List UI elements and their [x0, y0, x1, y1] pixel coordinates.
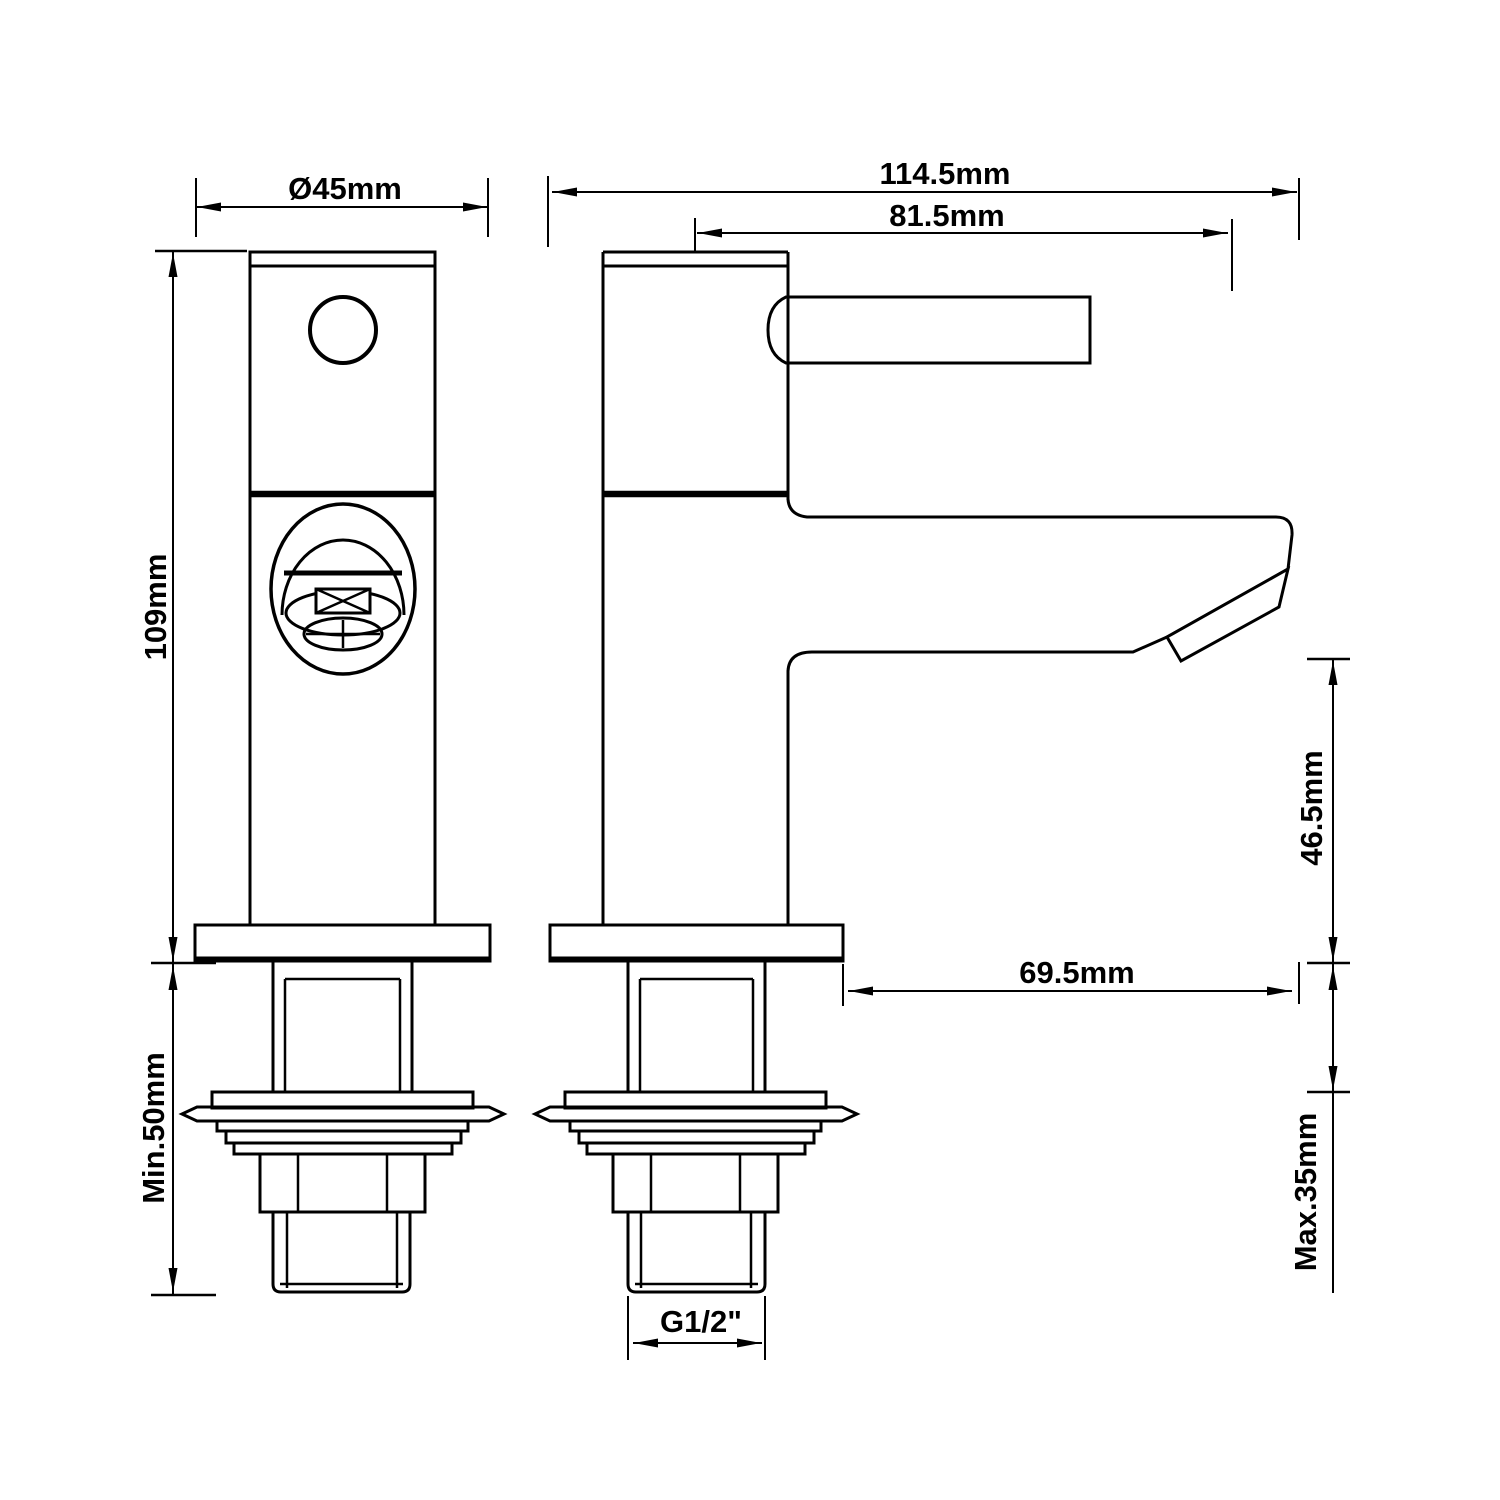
front-mounting-hole [310, 297, 376, 363]
dim-label-thread-size: G1/2" [660, 1304, 742, 1339]
arrowhead-down [1329, 1066, 1338, 1090]
arrowhead-down [169, 1268, 178, 1292]
dim-label-max-deck-thickness: Max.35mm [1288, 1113, 1323, 1272]
arrowhead-left [849, 987, 873, 996]
tap-dimension-drawing: Ø45mm 114.5mm 81.5mm [0, 0, 1500, 1500]
dim-label-spout-center-reach: 81.5mm [889, 198, 1004, 233]
arrowhead-down [169, 937, 178, 961]
front-threaded-tail [273, 1212, 410, 1292]
side-view [535, 252, 1292, 1292]
arrowhead-up [1329, 966, 1338, 990]
front-backnut [260, 1154, 425, 1212]
dimension-annotations: Ø45mm 114.5mm 81.5mm [136, 156, 1350, 1360]
arrowhead-left [698, 229, 722, 238]
front-washer-5 [234, 1143, 452, 1154]
arrowhead-left [197, 203, 221, 212]
arrowhead-right [737, 1339, 761, 1348]
dim-label-overall-reach: 114.5mm [880, 156, 1011, 191]
arrowhead-right [463, 203, 487, 212]
dim-label-body-height: 109mm [138, 554, 173, 661]
front-view [182, 252, 504, 1292]
arrowhead-right [1272, 188, 1296, 197]
side-washer-4 [579, 1131, 814, 1143]
dim-spout-center-reach: 81.5mm [695, 198, 1232, 291]
dim-label-base-diameter: Ø45mm [288, 171, 402, 206]
arrowhead-right [1267, 987, 1291, 996]
front-shank [273, 961, 412, 1092]
dim-thread-size: G1/2" [628, 1296, 765, 1360]
side-shank [628, 961, 765, 1092]
side-handle-lever [768, 297, 1090, 363]
arrowhead-left [634, 1339, 658, 1348]
dim-base-diameter: Ø45mm [196, 171, 488, 237]
side-spout-top-edge [788, 499, 1292, 569]
dim-label-min-clearance: Min.50mm [136, 1052, 171, 1204]
dim-left-vertical-chain: 109mm Min.50mm [136, 251, 247, 1295]
arrowhead-right [1203, 229, 1227, 238]
dim-spout-reach: 69.5mm [843, 955, 1299, 1006]
side-backnut [613, 1154, 778, 1212]
arrowhead-up [169, 966, 178, 990]
dim-label-spout-reach: 69.5mm [1019, 955, 1134, 990]
arrowhead-down [1329, 937, 1338, 961]
arrowhead-up [169, 253, 178, 277]
side-washer-5 [587, 1143, 805, 1154]
dim-label-spout-height: 46.5mm [1294, 750, 1329, 865]
side-threaded-tail [628, 1212, 765, 1292]
side-spout-nozzle [1167, 569, 1288, 661]
front-flange [195, 925, 490, 961]
front-washer-4 [226, 1131, 461, 1143]
arrowhead-left [553, 188, 577, 197]
dim-right-vertical-chain: 46.5mm Max.35mm [1288, 659, 1350, 1293]
side-flange [550, 925, 843, 961]
side-spout-underside [788, 637, 1167, 925]
technical-drawing-page: Ø45mm 114.5mm 81.5mm [0, 0, 1500, 1500]
arrowhead-up [1329, 661, 1338, 685]
